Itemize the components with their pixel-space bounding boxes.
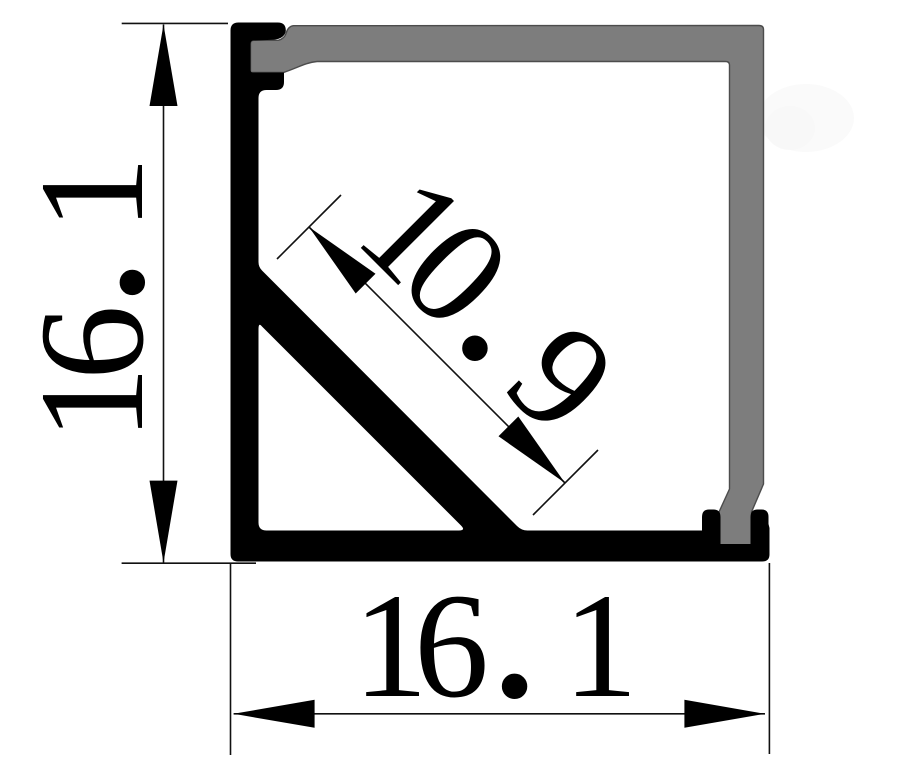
svg-text:1: 1: [563, 563, 638, 729]
svg-text:.: .: [0, 256, 189, 310]
svg-text:6: 6: [9, 305, 175, 380]
svg-text:6: 6: [414, 563, 489, 729]
svg-text:1: 1: [9, 156, 175, 231]
svg-text:.: .: [488, 504, 542, 743]
